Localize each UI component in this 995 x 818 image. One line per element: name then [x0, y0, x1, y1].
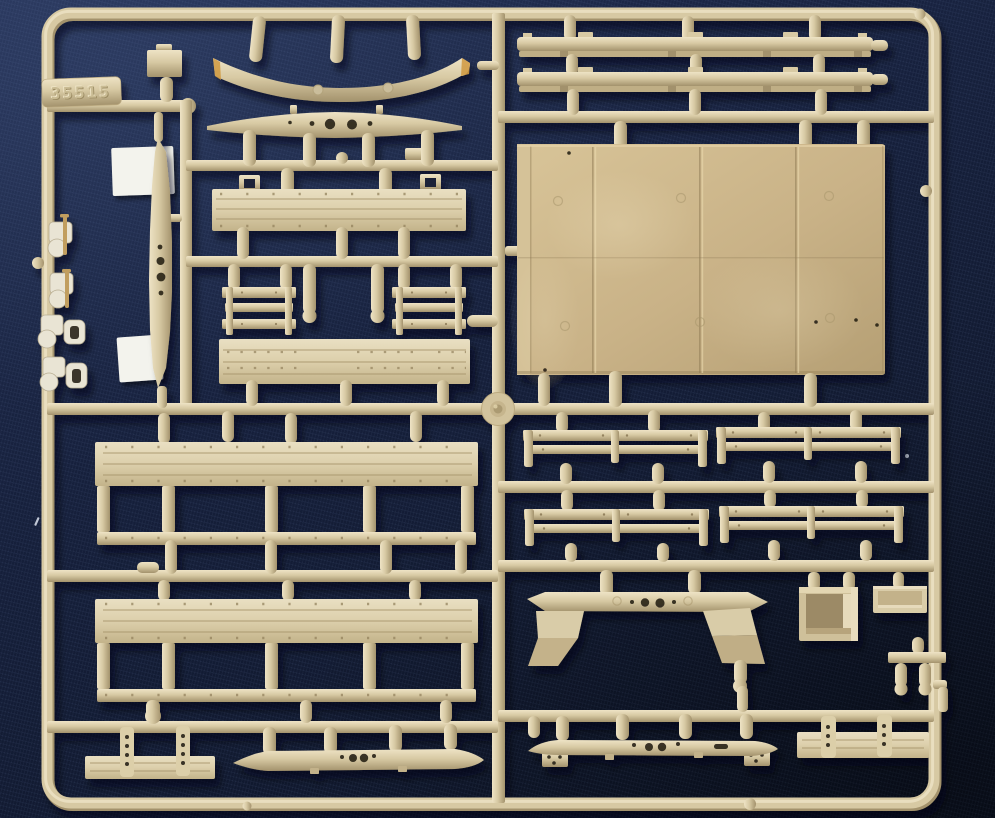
buckle-rings	[64, 320, 87, 388]
bench-rail-pair	[222, 264, 466, 335]
cargo-floor-panel	[510, 120, 885, 407]
end-plate-left	[85, 726, 215, 779]
front-bumper	[213, 15, 470, 102]
bed-side-board-upper	[212, 168, 466, 259]
sprue-photo-svg: 35515 35515 35515	[0, 0, 995, 818]
bed-side-board-lower	[219, 339, 470, 406]
sprue-center-gate-disc	[482, 393, 515, 426]
storage-box	[799, 572, 858, 641]
running-board-strips	[517, 15, 888, 115]
cross-member-beam	[207, 105, 462, 167]
tool-tray	[873, 572, 927, 613]
small-square-plate	[147, 44, 182, 102]
tag-number: 35515	[50, 82, 111, 103]
sprue: 35515 35515 35515	[32, 9, 948, 811]
photo-model-kit-sprue: 35515 35515 35515	[0, 0, 995, 818]
sprue-number-tag: 35515 35515 35515	[42, 77, 122, 108]
fender-bracket	[527, 570, 768, 712]
